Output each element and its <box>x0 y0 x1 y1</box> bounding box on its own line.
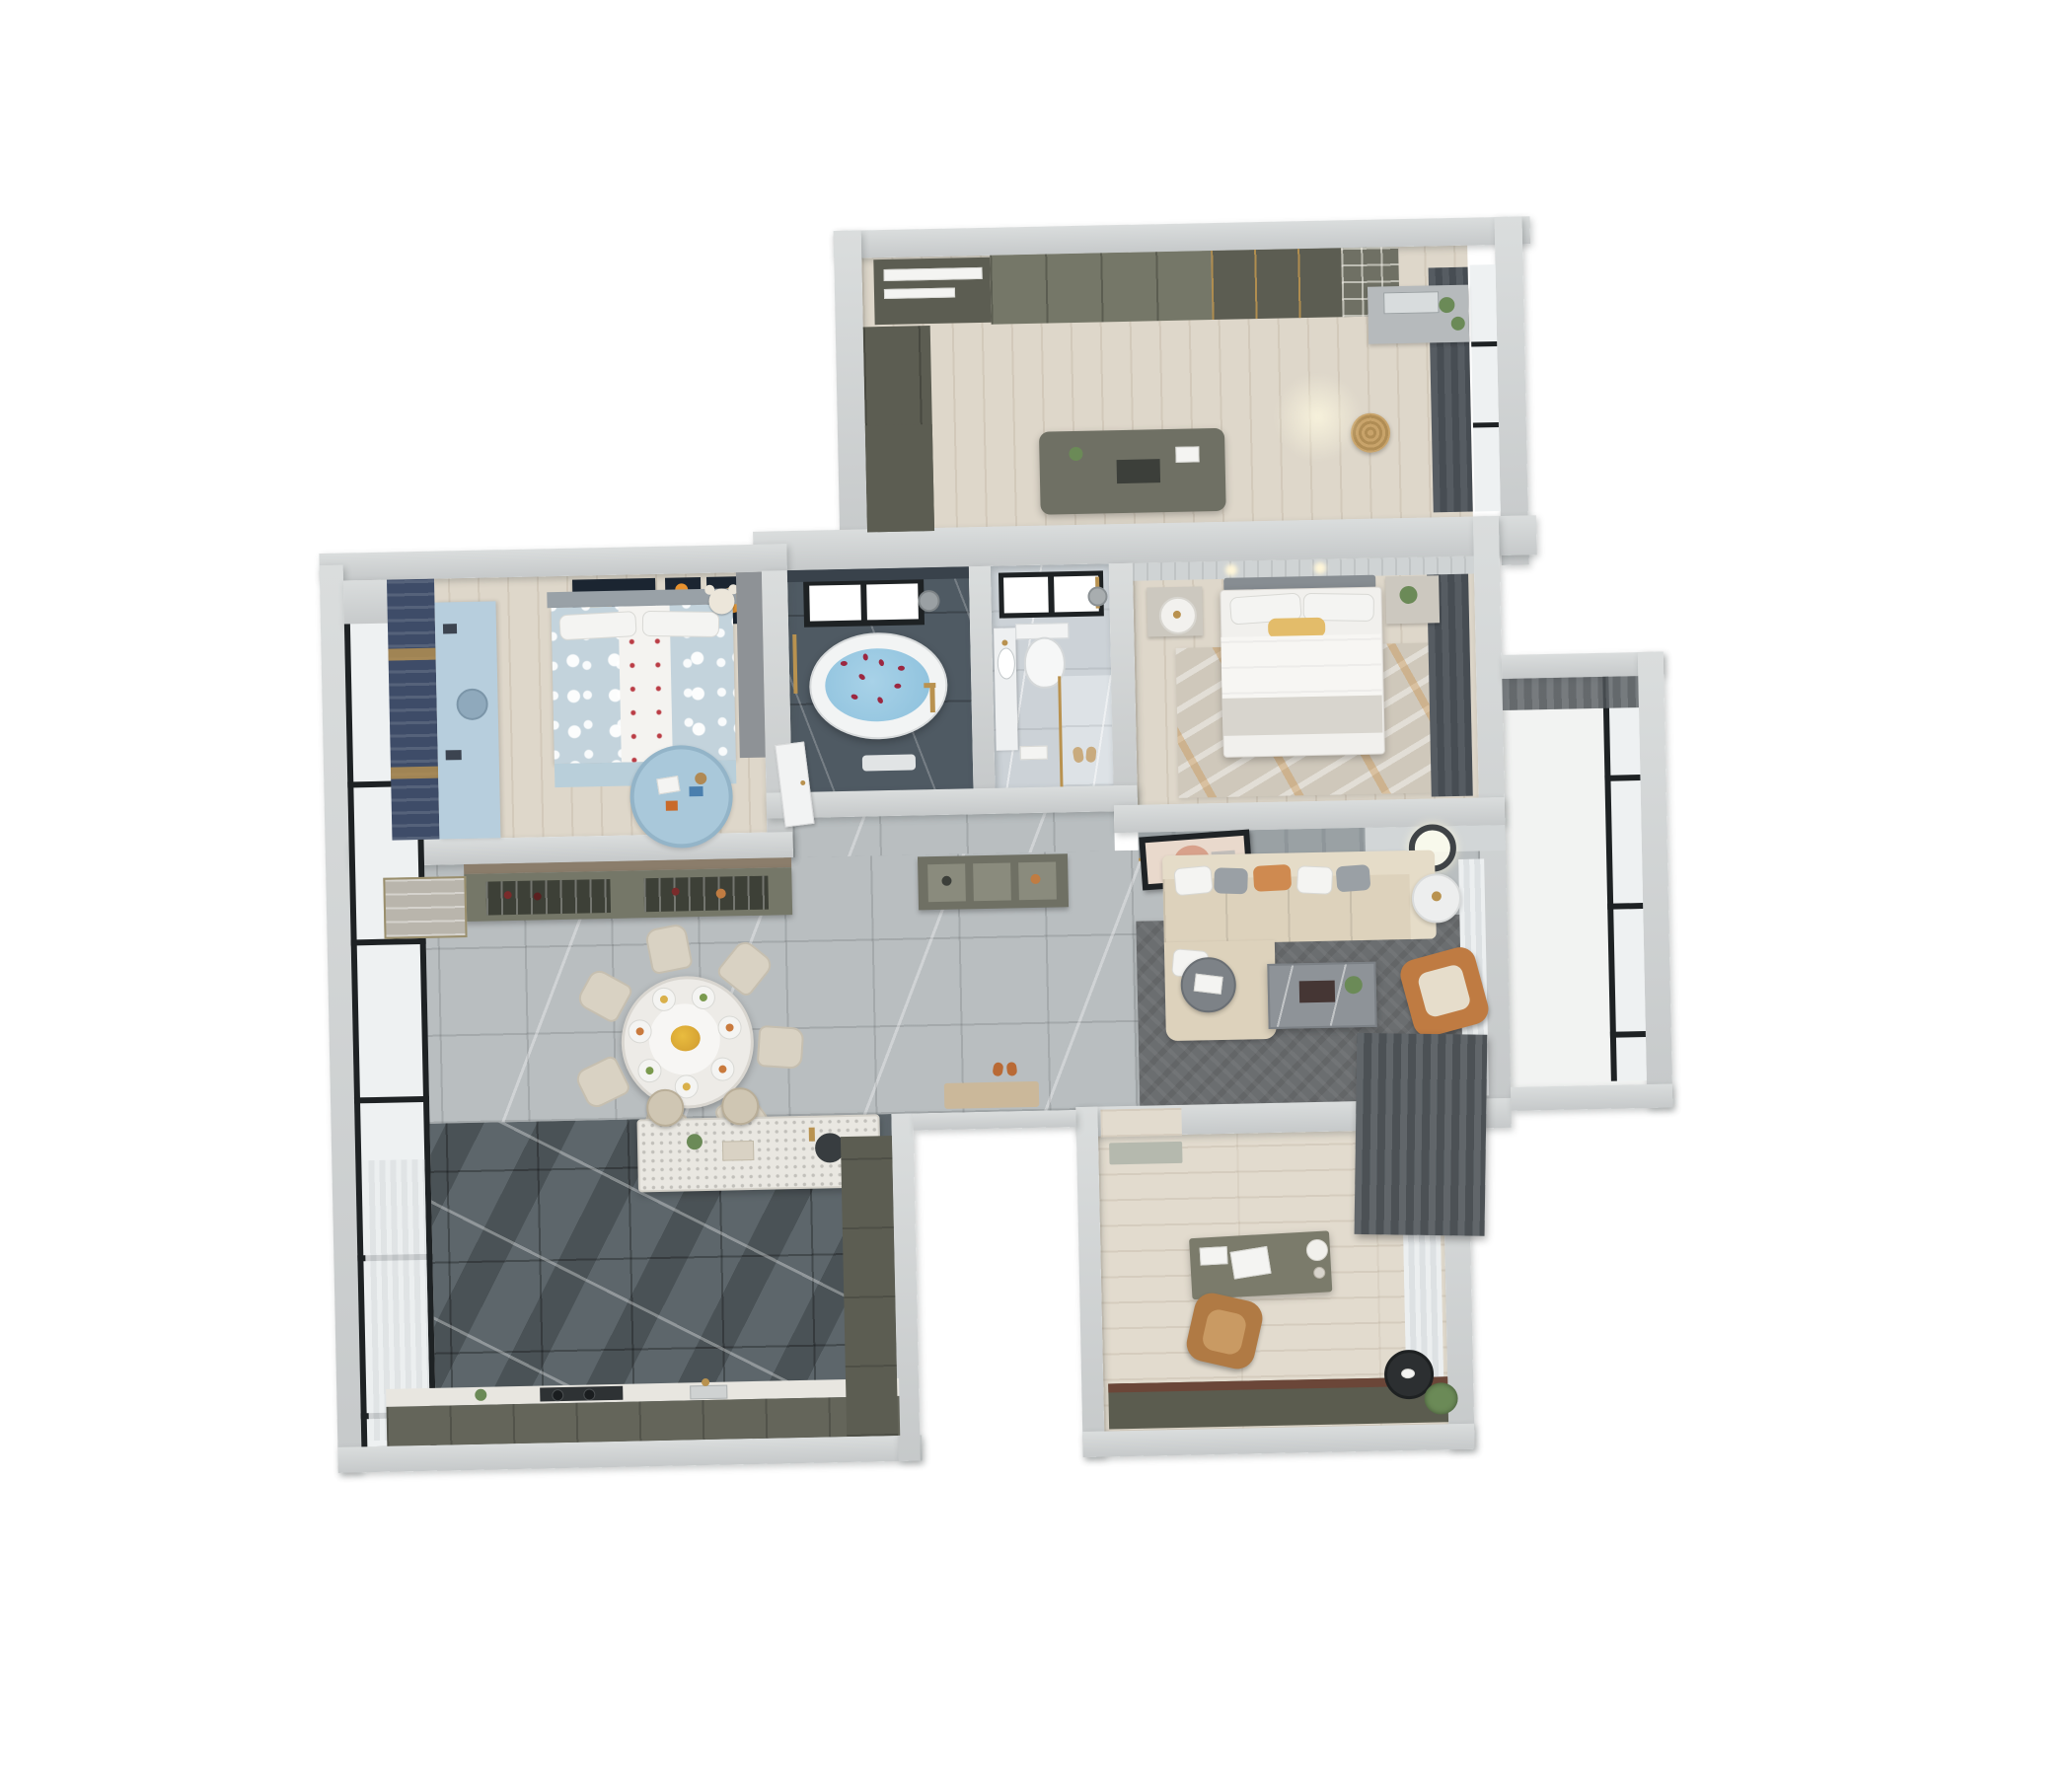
throw-pillow <box>1214 867 1248 894</box>
throw-pillow <box>1296 865 1333 895</box>
vanity-plant-icon <box>1439 297 1454 313</box>
drum-table-item-icon <box>1432 891 1442 901</box>
throw-pillow <box>1173 865 1213 896</box>
entry-door-mat <box>944 1081 1040 1109</box>
burner-icon <box>583 1388 595 1400</box>
curtain-tieback-icon <box>391 767 438 779</box>
bed-end-blanket <box>1222 696 1383 736</box>
desk-clutter-icon <box>446 750 462 760</box>
window-pane-icon <box>1003 577 1049 614</box>
bath-mat <box>862 754 916 771</box>
side-table-item-icon <box>1401 1369 1415 1378</box>
closet-island <box>1039 428 1226 515</box>
shower-vanity <box>994 628 1018 750</box>
bathtub-window <box>803 577 925 628</box>
desk-clutter-icon <box>443 624 457 633</box>
window-mullion-icon <box>1471 341 1497 347</box>
entry-shoe-console <box>918 853 1069 910</box>
food-icon <box>645 1067 653 1074</box>
window-mullion-icon <box>1610 1031 1646 1038</box>
vanity-mirror-icon <box>1383 291 1439 314</box>
island-plant-icon <box>687 1134 703 1149</box>
window-mullion-icon <box>354 1096 429 1104</box>
burner-icon <box>552 1389 563 1401</box>
balcony-louver-panel <box>1502 676 1639 710</box>
window-mullion-icon <box>1607 903 1643 910</box>
window-mullion-icon <box>1473 422 1499 428</box>
toy-block-icon <box>666 801 678 811</box>
throw-pillow <box>1253 864 1292 892</box>
study-desk <box>1189 1230 1332 1299</box>
nightstand-right <box>1385 575 1440 624</box>
desk-lamp-icon <box>1305 1238 1328 1261</box>
study-door-opening <box>1100 1108 1182 1138</box>
kids-desk-cabinet <box>434 601 500 839</box>
cooktop <box>540 1386 623 1402</box>
office-chair-cushion <box>1201 1307 1248 1357</box>
laptop-icon <box>1230 1246 1272 1280</box>
kids-pillow <box>558 611 636 640</box>
food-icon <box>660 996 668 1003</box>
curtain-tieback-icon <box>388 648 435 661</box>
console-shelf-icon <box>973 862 1011 901</box>
nightstand-plant-icon <box>1399 586 1417 604</box>
island-papers-icon <box>1175 446 1199 462</box>
dining-chair <box>757 1025 805 1070</box>
food-icon <box>636 1027 644 1035</box>
coffee-table <box>1267 962 1376 1029</box>
closet-lower-cabinet <box>865 424 934 532</box>
vanity-plant-icon <box>1451 317 1465 331</box>
wall-entry-threshold <box>913 1110 1075 1130</box>
wall-balcony-bottom <box>1511 1083 1672 1110</box>
towel-icon <box>1020 746 1048 761</box>
kitchen-sink <box>690 1385 727 1400</box>
island-plant-icon <box>1069 447 1082 461</box>
dining-chair <box>644 923 694 975</box>
wall-closet-right <box>1495 216 1529 565</box>
apartment-3d-floorplan <box>0 0 2072 1776</box>
coffee-cup-icon <box>1313 1267 1326 1280</box>
closet-glass-wardrobe <box>1211 248 1342 320</box>
desk-papers-icon <box>1200 1246 1228 1266</box>
window-pane-icon <box>809 585 861 622</box>
closet-window <box>1470 264 1501 511</box>
window-pane-icon <box>866 583 919 620</box>
wine-buffet <box>464 867 792 922</box>
floorplan-canvas <box>0 0 2072 1776</box>
display-cabinet <box>383 876 467 939</box>
toy-block-icon <box>689 786 703 796</box>
slipper-icon <box>1006 1062 1018 1076</box>
kids-pillow <box>642 611 719 637</box>
glass-rack-icon <box>643 876 769 913</box>
armchair-cushion <box>1416 963 1471 1018</box>
study-door-mat <box>1109 1142 1182 1165</box>
closet-door-wardrobe <box>990 251 1212 325</box>
vanity-sink-icon <box>998 647 1016 679</box>
coffee-table-tray-icon <box>1299 981 1335 1003</box>
island-tray-icon <box>1117 459 1160 483</box>
shower-tile-zone <box>1060 675 1113 786</box>
floor-faucet-icon <box>929 687 935 712</box>
food-icon <box>725 1023 733 1031</box>
kitchen-tall-cabinet <box>841 1136 898 1437</box>
side-table-book-icon <box>1194 974 1223 995</box>
hanging-curtain-panel <box>1355 1033 1488 1236</box>
closet-vanity <box>1368 285 1469 344</box>
food-icon <box>700 994 707 1001</box>
hanging-clothes-icon <box>883 267 982 281</box>
island-faucet-icon <box>809 1128 815 1142</box>
faucet-icon <box>1001 639 1007 645</box>
coffee-table-plant-icon <box>1345 976 1363 994</box>
throw-pillow <box>1336 864 1371 892</box>
closet-hanging-wardrobe <box>873 258 991 325</box>
door-handle-icon <box>800 780 806 786</box>
kids-wardrobe <box>736 572 766 759</box>
cutting-board-icon <box>722 1141 754 1161</box>
window-mullion-icon <box>1604 775 1640 781</box>
lamp-bulb-icon <box>1173 611 1181 619</box>
food-icon <box>718 1066 726 1073</box>
kids-navy-curtain <box>387 579 440 841</box>
food-icon <box>683 1082 691 1090</box>
window-mullion-icon <box>351 938 426 946</box>
hanging-clothes-icon <box>884 287 955 299</box>
floor-faucet-spout-icon <box>924 683 935 688</box>
